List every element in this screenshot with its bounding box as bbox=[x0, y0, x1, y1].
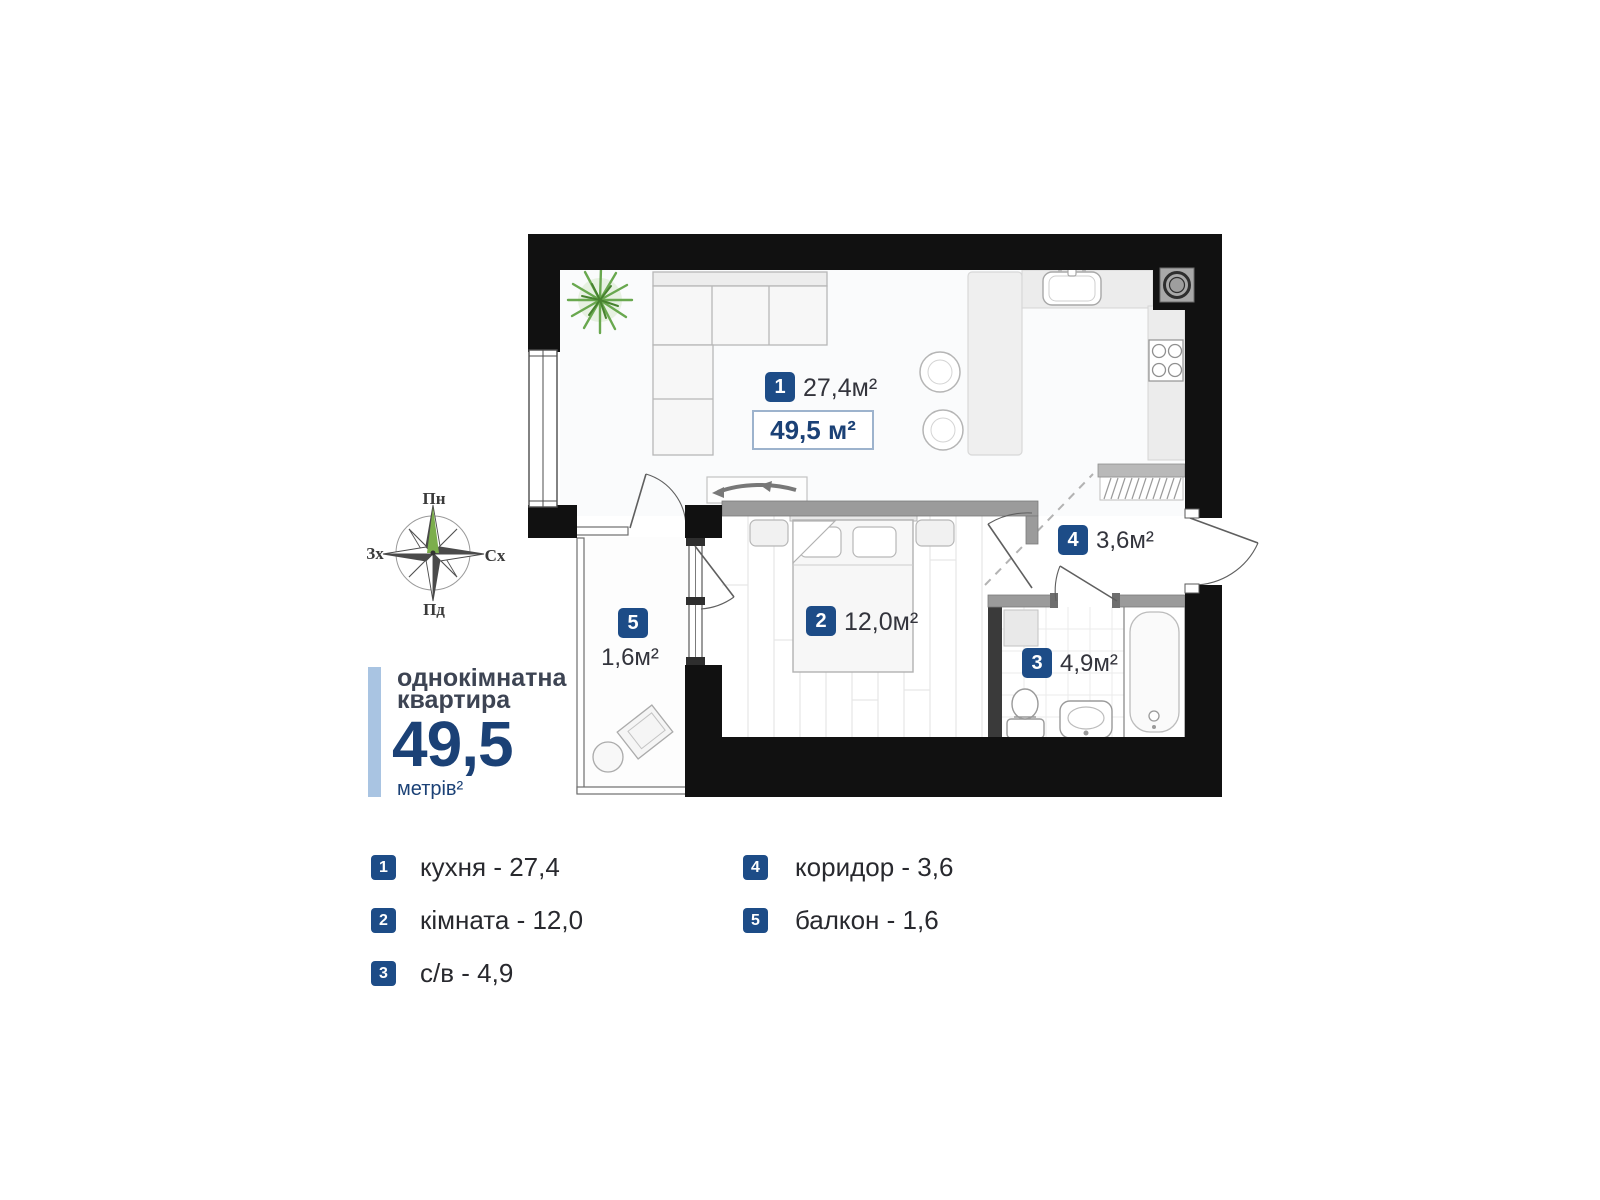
total-area-box: 49,5 м² bbox=[752, 410, 874, 450]
corner-appliance bbox=[1160, 268, 1194, 302]
room-area-bathroom: 4,9м² bbox=[1060, 650, 1118, 678]
compass-rose bbox=[383, 505, 484, 601]
room-badge-kitchen: 1 bbox=[765, 372, 795, 402]
room-badge-corridor: 4 bbox=[1058, 525, 1088, 555]
summary-accent-bar bbox=[368, 667, 381, 797]
legend-label-corridor: коридор - 3,6 bbox=[795, 852, 953, 883]
legend-label-balcony: балкон - 1,6 bbox=[795, 905, 939, 936]
tv-unit bbox=[707, 477, 807, 503]
balcony-door-unit bbox=[686, 538, 705, 665]
total-area-value: 49,5 м² bbox=[770, 415, 856, 446]
legend-badge-corridor: 4 bbox=[743, 855, 768, 880]
room-badge-balcony: 5 bbox=[618, 608, 648, 638]
legend-badge-kitchen: 1 bbox=[371, 855, 396, 880]
compass-label-north: Пн bbox=[422, 489, 445, 509]
kitchen-sink bbox=[1043, 266, 1101, 305]
kitchen-island bbox=[968, 272, 1022, 455]
compass-label-west: Зх bbox=[366, 544, 383, 564]
legend-row-bathroom: 3 с/в - 4,9 bbox=[371, 958, 513, 989]
bed bbox=[790, 511, 917, 672]
legend-row-bedroom: 2 кімната - 12,0 bbox=[371, 905, 583, 936]
legend-row-kitchen: 1 кухня - 27,4 bbox=[371, 852, 560, 883]
legend-label-bedroom: кімната - 12,0 bbox=[420, 905, 583, 936]
entrance-door-jambs bbox=[1185, 509, 1199, 593]
legend-badge-bathroom: 3 bbox=[371, 961, 396, 986]
room-area-corridor: 3,6м² bbox=[1096, 527, 1154, 555]
legend-row-balcony: 5 балкон - 1,6 bbox=[743, 905, 939, 936]
room-area-bedroom: 12,0м² bbox=[844, 608, 918, 637]
entrance-door bbox=[1190, 518, 1258, 585]
bathroom-sink bbox=[1060, 701, 1112, 738]
floor-plan-page: 1 27,4м² 49,5 м² 2 12,0м² 3 4,9м² 4 3,6м… bbox=[0, 0, 1600, 1200]
room-area-kitchen: 27,4м² bbox=[803, 374, 877, 403]
room-badge-bedroom: 2 bbox=[806, 606, 836, 636]
stove bbox=[1149, 340, 1183, 381]
summary-area-value: 49,5 bbox=[392, 712, 513, 776]
legend-row-corridor: 4 коридор - 3,6 bbox=[743, 852, 953, 883]
legend-label-kitchen: кухня - 27,4 bbox=[420, 852, 560, 883]
washing-machine bbox=[1004, 610, 1038, 646]
legend-badge-bedroom: 2 bbox=[371, 908, 396, 933]
summary-area-unit: метрів² bbox=[397, 778, 463, 801]
legend-badge-balcony: 5 bbox=[743, 908, 768, 933]
room-badge-bathroom: 3 bbox=[1022, 648, 1052, 678]
corridor-closet bbox=[1098, 464, 1185, 500]
legend-label-bathroom: с/в - 4,9 bbox=[420, 958, 513, 989]
bathtub bbox=[1124, 606, 1185, 740]
room-area-balcony: 1,6м² bbox=[594, 644, 666, 672]
compass-label-east: Сх bbox=[485, 546, 506, 566]
living-room-window bbox=[529, 350, 557, 507]
compass-label-south: Пд bbox=[423, 600, 445, 620]
floor-plan-drawing bbox=[0, 0, 1600, 1200]
balcony-table bbox=[593, 742, 623, 772]
bedroom-door bbox=[988, 513, 1032, 588]
kitchen-counter-right bbox=[1148, 306, 1185, 460]
